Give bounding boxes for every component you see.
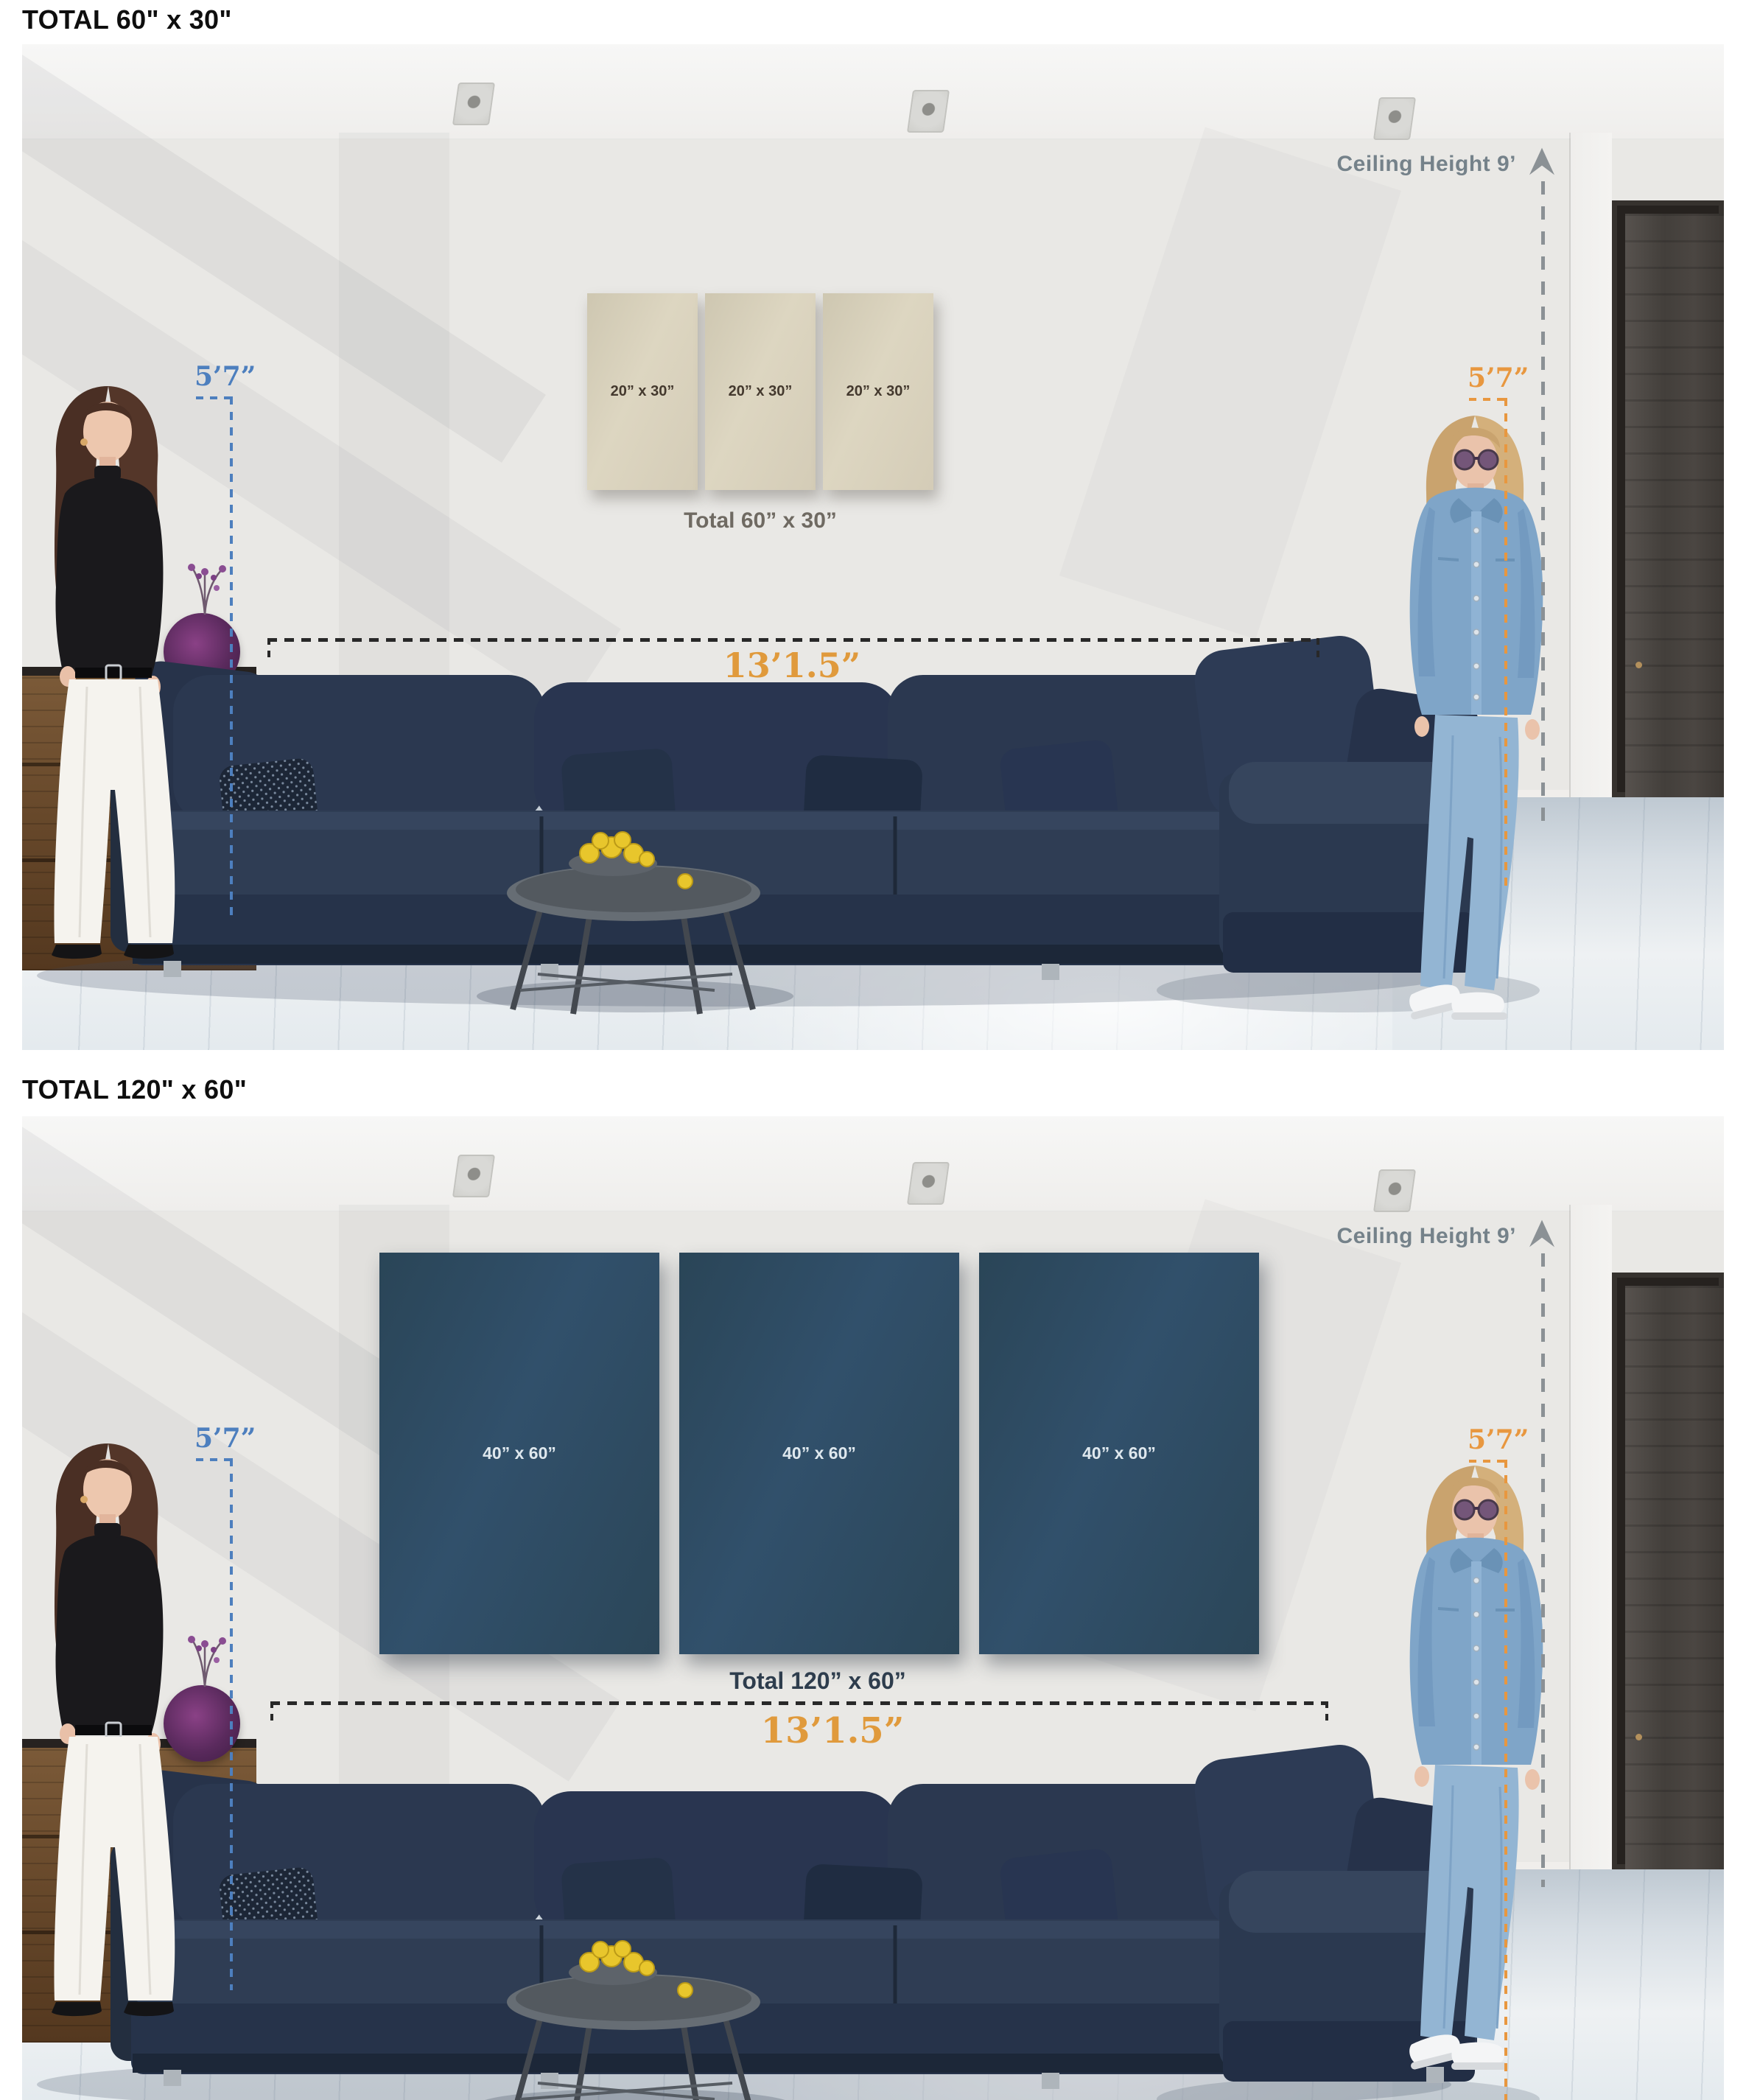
person-height-line-right <box>1504 1460 1507 2100</box>
total-size-caption: Total 60” x 30” <box>642 508 878 533</box>
ceiling-height-label: Ceiling Height 9’ <box>1273 152 1516 177</box>
ceiling-height-dashed-line <box>1541 181 1545 824</box>
recessed-light-icon <box>452 1155 495 1197</box>
recessed-light-icon <box>1373 1169 1416 1212</box>
person-height-line-left <box>230 396 233 918</box>
person-height-line-left <box>230 1458 233 1990</box>
room-scene-large: 40” x 60” 40” x 60” 40” x 60” Total 120”… <box>22 1116 1724 2100</box>
person-height-dash-left <box>196 396 233 399</box>
art-panel: 20” x 30” <box>587 293 698 490</box>
sofa-width-tick-right <box>1325 1701 1328 1723</box>
ceiling-height-dashed-line <box>1541 1253 1545 1887</box>
woman-left <box>22 377 200 959</box>
recessed-light-icon <box>907 1162 950 1205</box>
person-height-dash-right <box>1469 398 1507 401</box>
recessed-light-icon <box>1373 97 1416 140</box>
art-panel-size-label: 40” x 60” <box>782 1443 856 1463</box>
woman-right <box>1364 1446 1585 2095</box>
sofa-width-dashed-line <box>267 638 1319 642</box>
person-height-label-left: 5’7” <box>194 361 256 392</box>
person-height-dash-left <box>196 1458 233 1461</box>
room-scene-small: 20” x 30” 20” x 30” 20” x 30” Total 60” … <box>22 44 1724 1050</box>
art-panel-size-label: 20” x 30” <box>846 383 911 400</box>
person-height-dash-right <box>1469 1460 1507 1463</box>
arrow-up-icon <box>1529 147 1554 175</box>
person-height-label-left: 5’7” <box>194 1423 256 1454</box>
woman-left <box>22 1435 200 2017</box>
woman-right <box>1364 396 1585 1045</box>
recessed-light-icon <box>452 83 495 125</box>
art-panel-size-label: 40” x 60” <box>1082 1443 1156 1463</box>
art-panel: 40” x 60” <box>979 1253 1259 1654</box>
art-panel: 20” x 30” <box>705 293 816 490</box>
art-panel: 20” x 30” <box>823 293 933 490</box>
ceiling-height-label: Ceiling Height 9’ <box>1273 1224 1516 1249</box>
sofa-width-dashed-line <box>270 1701 1328 1705</box>
sofa-width-label: 13’1.5” <box>707 1710 958 1751</box>
sofa-width-tick-right <box>1316 638 1319 660</box>
sofa-width-label: 13’1.5” <box>667 645 917 685</box>
total-size-caption: Total 120” x 60” <box>700 1667 936 1695</box>
arrow-up-icon <box>1529 1219 1554 1247</box>
section-title-large: TOTAL 120" x 60" <box>22 1074 247 1105</box>
art-panel: 40” x 60” <box>679 1253 959 1654</box>
art-panel: 40” x 60” <box>379 1253 659 1654</box>
wall-shadow <box>1059 127 1401 639</box>
person-height-line-right <box>1504 398 1507 887</box>
section-title-small: TOTAL 60" x 30" <box>22 4 232 35</box>
sofa-width-tick-left <box>270 1701 273 1723</box>
ceiling <box>22 44 1724 139</box>
art-panel-size-label: 40” x 60” <box>483 1443 556 1463</box>
person-height-label-right: 5’7” <box>1468 1424 1529 1455</box>
recessed-light-icon <box>907 90 950 133</box>
art-panel-size-label: 20” x 30” <box>729 383 793 400</box>
art-panel-size-label: 20” x 30” <box>611 383 675 400</box>
ceiling <box>22 1116 1724 1211</box>
person-height-label-right: 5’7” <box>1468 363 1529 393</box>
sofa-width-tick-left <box>267 638 270 660</box>
